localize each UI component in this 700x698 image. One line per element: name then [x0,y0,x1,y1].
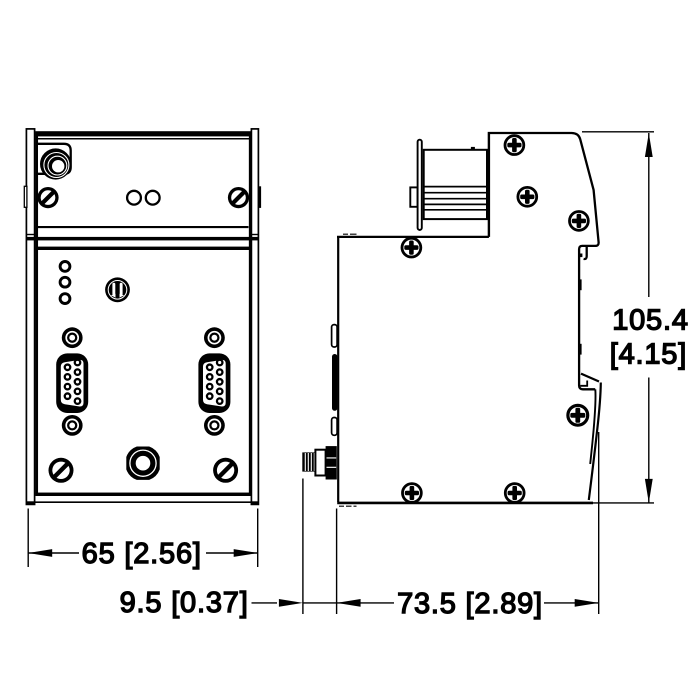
svg-text:73.5 [2.89]: 73.5 [2.89] [397,588,543,620]
svg-text:65 [2.56]: 65 [2.56] [82,538,202,570]
svg-text:9.5 [0.37]: 9.5 [0.37] [120,587,249,619]
svg-text:105.4: 105.4 [612,305,689,337]
svg-text:[4.15]: [4.15] [610,339,687,371]
